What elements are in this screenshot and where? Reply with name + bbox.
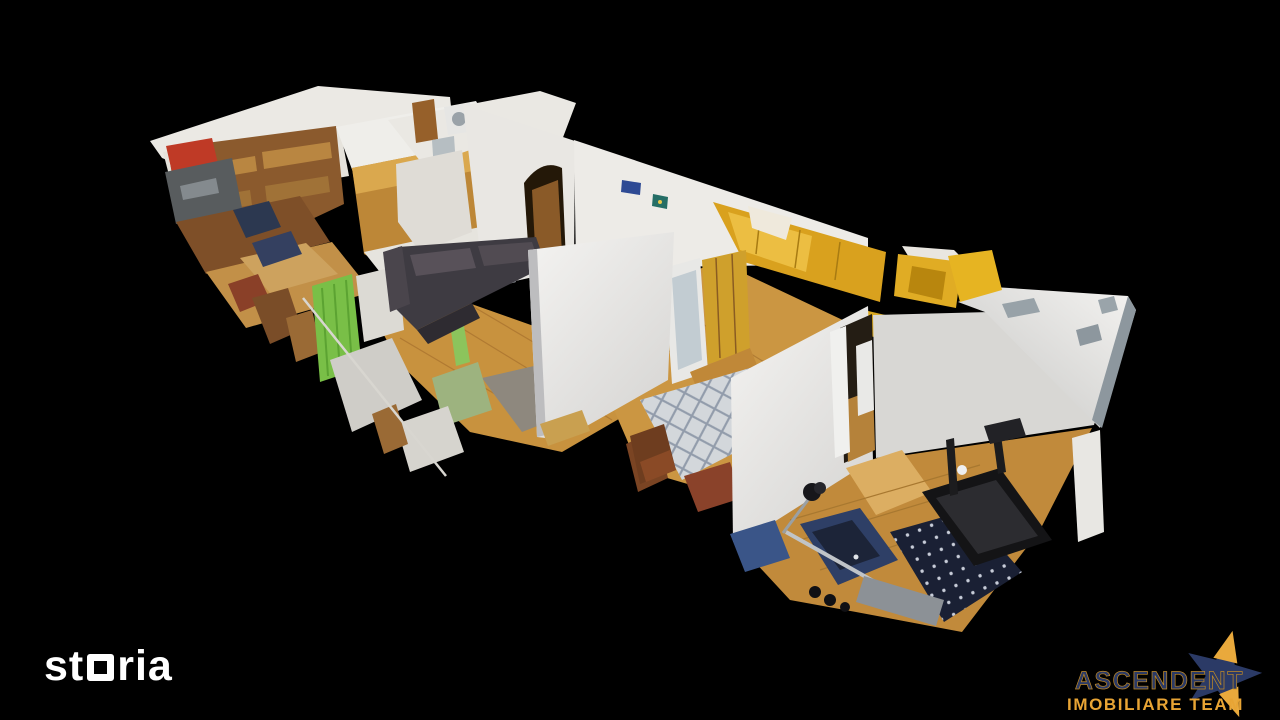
storia-logo: stria [44, 645, 173, 688]
hall-door [412, 99, 438, 143]
agency-logo: ASCENDENT IMOBILIARE TEAM [1067, 669, 1244, 713]
dumbbell [840, 602, 850, 612]
hall-wardrobe [702, 250, 750, 364]
apartment-3d-view[interactable] [0, 0, 1280, 720]
storia-logo-text: st [44, 642, 84, 690]
agency-tagline: IMOBILIARE TEAM [1067, 696, 1244, 713]
agency-name: ASCENDENT [1067, 669, 1244, 694]
storia-square-o-icon [87, 654, 114, 681]
storia-logo-text: ria [117, 642, 173, 690]
dumbbell [824, 594, 836, 606]
listing-photo-stage: stria ASCENDENT IMOBILIARE TEAM [0, 0, 1280, 720]
dumbbell [809, 586, 821, 598]
